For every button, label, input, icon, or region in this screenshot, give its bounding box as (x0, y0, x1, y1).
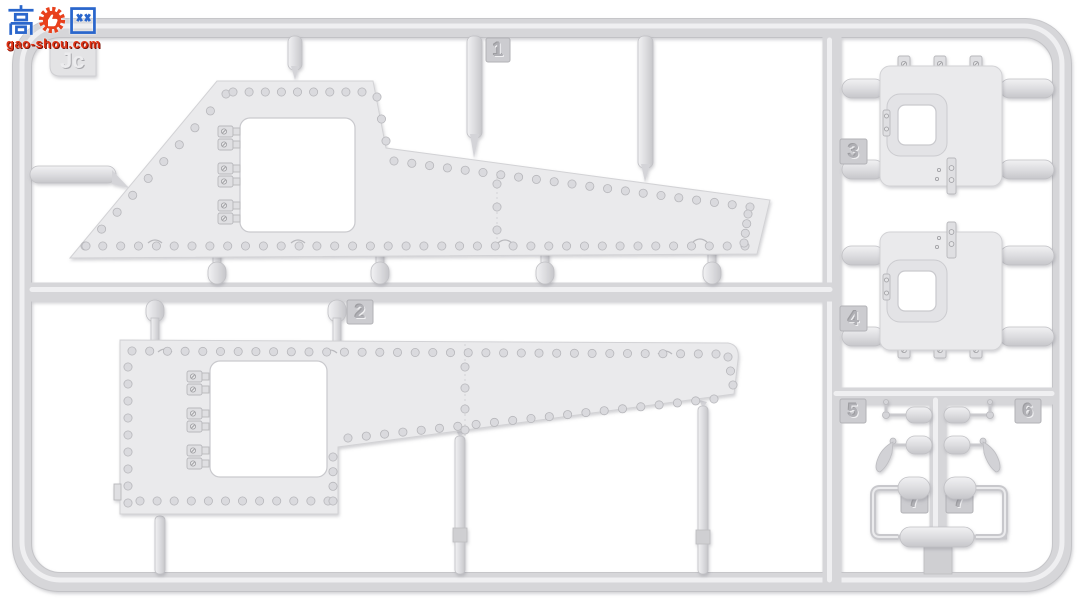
rivet (509, 416, 517, 424)
rivet (693, 196, 701, 204)
watermark-url: gao-shou.com (6, 36, 101, 51)
rivet (634, 242, 642, 250)
rivet (692, 397, 700, 405)
runner-foot (924, 546, 952, 574)
rivet (124, 448, 132, 456)
rivet (435, 424, 443, 432)
part-1-riveted-panel (70, 81, 770, 258)
rivet (741, 229, 749, 237)
rivet (170, 242, 178, 250)
rivet (532, 175, 540, 183)
rivet (270, 348, 278, 356)
rivet (509, 242, 517, 250)
rivet (373, 93, 381, 101)
rivet (124, 431, 132, 439)
rivet (329, 453, 337, 461)
rivet (659, 350, 667, 358)
rivet (723, 242, 731, 250)
rivet (399, 428, 407, 436)
rivet (381, 430, 389, 438)
rivet (384, 242, 392, 250)
rivet (160, 158, 168, 166)
rivet (366, 242, 374, 250)
rivet (323, 348, 331, 356)
rivet (616, 242, 624, 250)
rivet (411, 348, 419, 356)
part-number-tag-2: 2 (347, 300, 373, 324)
rivet (117, 242, 125, 250)
rivet (358, 348, 366, 356)
rivet (98, 225, 106, 233)
rivet (618, 405, 626, 413)
svg-text:1: 1 (493, 40, 504, 61)
rivet (564, 411, 572, 419)
rivet (241, 242, 249, 250)
part-4-hatch (880, 222, 1002, 358)
rivet (206, 107, 214, 115)
rivet (124, 363, 132, 371)
rivet (358, 88, 366, 96)
rivet (310, 88, 318, 96)
part-number-tag-1: 1 (486, 38, 510, 62)
rivet (124, 380, 132, 388)
rivet (438, 242, 446, 250)
rivet (479, 168, 487, 176)
part-2-window-cutout (210, 361, 327, 477)
rivet (344, 434, 352, 442)
rivet (152, 242, 160, 250)
rivet (277, 242, 285, 250)
rivet (181, 347, 189, 355)
rivet (604, 185, 612, 193)
rivet (657, 191, 665, 199)
sprue-letter: Jc (60, 48, 84, 73)
rivet (238, 497, 246, 505)
part-4-window (898, 271, 936, 311)
rivet (472, 420, 480, 428)
rivet (163, 347, 171, 355)
rivet (252, 348, 260, 356)
rivet (420, 242, 428, 250)
lever-blade-right (983, 442, 1000, 472)
rivet (655, 401, 663, 409)
rivet (473, 242, 481, 250)
rivet (461, 384, 469, 392)
part-number-tag-6: 6 (1015, 399, 1041, 423)
rivet (245, 88, 253, 96)
rivet (726, 367, 734, 375)
rivet (206, 242, 214, 250)
rivet (744, 210, 752, 218)
rivet (129, 191, 137, 199)
rivet (408, 159, 416, 167)
rivet (606, 349, 614, 357)
part-number-tag-4: 4 (840, 306, 867, 331)
rivet (545, 242, 553, 250)
rivet (710, 198, 718, 206)
rivet (517, 349, 525, 357)
rivet (124, 397, 132, 405)
rivet (553, 349, 561, 357)
grab-handle-right (976, 488, 1005, 537)
rivet (712, 350, 720, 358)
rivet (82, 242, 90, 250)
rivet (639, 189, 647, 197)
rivet (550, 178, 558, 186)
rivet (234, 347, 242, 355)
rivet (170, 497, 178, 505)
rivet (710, 395, 718, 403)
rivet (124, 482, 132, 490)
rivet (724, 353, 732, 361)
rivet (491, 242, 499, 250)
runner-to-part1 (467, 36, 482, 138)
rivet (461, 363, 469, 371)
rivet (515, 173, 523, 181)
rivet (429, 348, 437, 356)
rivet (342, 88, 350, 96)
part-number-tag-3: 3 (840, 139, 867, 164)
rivet (113, 208, 121, 216)
rivet (426, 162, 434, 170)
rivet (144, 174, 152, 182)
rivet (305, 348, 313, 356)
rivet (99, 242, 107, 250)
rivet (652, 242, 660, 250)
rivet (729, 381, 737, 389)
watermark-char-wang (68, 4, 98, 36)
rivet (175, 141, 183, 149)
rivet (586, 182, 594, 190)
rivet (261, 88, 269, 96)
watermark-gear-logo (37, 4, 67, 36)
rivet (329, 497, 337, 505)
part-3-hatch (880, 56, 1002, 194)
rivet (290, 497, 298, 505)
rivet (728, 201, 736, 209)
rivet (598, 242, 606, 250)
part-1-window-cutout (240, 118, 355, 232)
rivet (340, 348, 348, 356)
svg-text:5: 5 (848, 401, 859, 422)
rivet (349, 242, 357, 250)
rivet (124, 465, 132, 473)
rivet (402, 242, 410, 250)
rivet (570, 349, 578, 357)
rivet (493, 226, 501, 234)
rivet (535, 349, 543, 357)
watermark-char-gao (6, 4, 36, 36)
rivet (134, 242, 142, 250)
rivet (331, 242, 339, 250)
rivet (377, 115, 385, 123)
rivet (329, 468, 337, 476)
rivet (277, 88, 285, 96)
rivet (500, 349, 508, 357)
rivet (568, 180, 576, 188)
rivet (464, 349, 472, 357)
rivet (600, 407, 608, 415)
rivet (443, 164, 451, 172)
part-3-window (898, 105, 936, 145)
rivet (191, 124, 199, 132)
rivet (153, 497, 161, 505)
rivet (273, 497, 281, 505)
rivet (329, 482, 337, 490)
rivet (588, 349, 596, 357)
rivet (446, 349, 454, 357)
rivet (670, 242, 678, 250)
rivet (124, 414, 132, 422)
rivet (146, 347, 154, 355)
rivet (362, 432, 370, 440)
svg-text:6: 6 (1023, 401, 1034, 422)
rivet (187, 497, 195, 505)
rivet (527, 242, 535, 250)
grab-handle-left (873, 488, 898, 537)
rivet (493, 203, 501, 211)
sprue-sheet: 12345677 Jc (0, 0, 1087, 607)
rivet (582, 409, 590, 417)
rivet (527, 414, 535, 422)
svg-text:4: 4 (848, 308, 860, 330)
rivet (545, 413, 553, 421)
rivet (675, 194, 683, 202)
rivet (204, 497, 212, 505)
rivet (694, 350, 702, 358)
rivet (621, 187, 629, 195)
rivet (623, 349, 631, 357)
rivet (417, 426, 425, 434)
rivet (743, 220, 751, 228)
rivet (390, 157, 398, 165)
rivet (456, 242, 464, 250)
rivet (673, 399, 681, 407)
rivet (326, 88, 334, 96)
rivet (259, 242, 267, 250)
rivet (256, 497, 264, 505)
rivet (313, 242, 321, 250)
rivet (493, 180, 501, 188)
rivet (393, 348, 401, 356)
rivet (287, 348, 295, 356)
rivet (293, 88, 301, 96)
rivet (687, 242, 695, 250)
rivet (490, 418, 498, 426)
rivet (705, 242, 713, 250)
lever-blade-left (876, 442, 893, 472)
rivet (221, 497, 229, 505)
rivet (563, 242, 571, 250)
rivet (188, 242, 196, 250)
svg-text:2: 2 (355, 302, 366, 323)
rivet (199, 347, 207, 355)
rivet (295, 242, 303, 250)
rivet (497, 171, 505, 179)
part-number-tag-5: 5 (840, 399, 866, 423)
rivet (128, 347, 136, 355)
rivet (461, 166, 469, 174)
rivet (307, 497, 315, 505)
rivet (376, 348, 384, 356)
rivet (224, 242, 232, 250)
rivet (677, 350, 685, 358)
part-2-riveted-panel (114, 340, 738, 514)
rivet (382, 137, 390, 145)
rivet (740, 239, 748, 247)
rivet (641, 350, 649, 358)
rivet (461, 426, 469, 434)
rivet (637, 403, 645, 411)
bulb-gates-part2 (146, 300, 346, 342)
sprue-photo: 12345677 Jc (0, 0, 1087, 607)
rivet (482, 349, 490, 357)
rivet (124, 499, 132, 507)
rivet (461, 405, 469, 413)
watermark: gao-shou.com (6, 2, 101, 51)
svg-text:3: 3 (848, 141, 859, 163)
rivet (580, 242, 588, 250)
rivet (136, 497, 144, 505)
rivet (229, 88, 237, 96)
rivet (216, 347, 224, 355)
